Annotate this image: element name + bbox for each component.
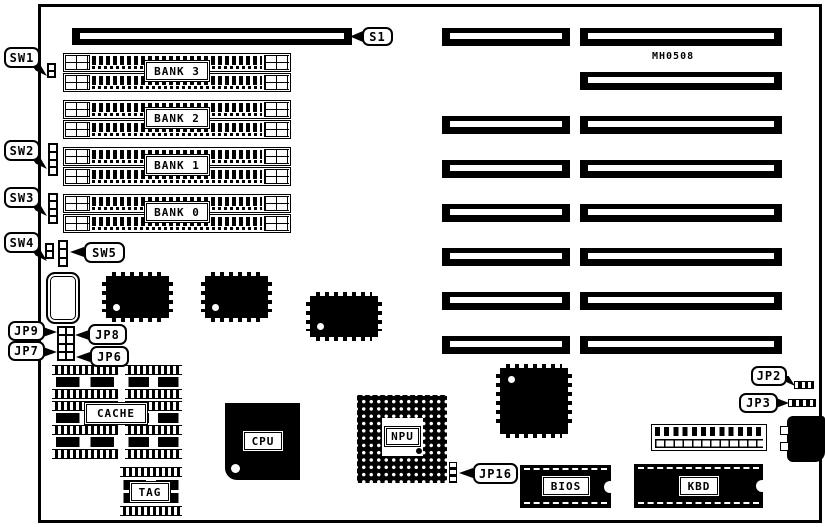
isa-slot [442, 336, 570, 354]
isa-slot [442, 292, 570, 310]
isa-slot [442, 204, 570, 222]
sw1-callout: SW1 [4, 47, 40, 68]
sw5-dip-switch [58, 240, 68, 267]
isa-slot [580, 160, 782, 178]
bios-chip: BIOS [520, 465, 611, 508]
isa-slot [442, 28, 570, 46]
isa-slot [580, 28, 782, 46]
keyboard-din-connector [787, 416, 825, 462]
npu-socket: NPU [357, 395, 447, 483]
s1-callout: S1 [362, 27, 393, 46]
part-number-text: MH0508 [652, 51, 694, 62]
cpu-chip: CPU [225, 403, 300, 480]
jp2-callout: JP2 [751, 366, 787, 386]
qfp-chip-3 [310, 296, 378, 337]
jp3-callout: JP3 [739, 393, 778, 413]
bank-2-label: BANK 2 [146, 109, 208, 127]
sw3-dip-switch [48, 193, 58, 224]
cache-label: CACHE [86, 404, 146, 423]
kbd-label: KBD [680, 477, 718, 495]
din-tab [780, 426, 789, 435]
jp9-callout: JP9 [8, 321, 45, 341]
isa-slot [580, 72, 782, 90]
jp2-jumper [794, 381, 814, 389]
bank-0-label: BANK 0 [146, 203, 208, 221]
jp6-callout: JP6 [90, 346, 129, 367]
crystal-oscillator [46, 272, 80, 324]
jp16-callout: JP16 [473, 463, 518, 484]
sw5-callout: SW5 [84, 242, 125, 263]
motherboard-diagram: S1 BANK 3 BANK 2 BANK 1 BANK 0 SW1 SW2 S… [0, 0, 825, 527]
isa-slot [442, 116, 570, 134]
npu-label: NPU [386, 428, 419, 445]
cpu-label: CPU [244, 432, 282, 450]
isa-slot [580, 204, 782, 222]
sw1-dip-switch [47, 63, 56, 78]
isa-slot [580, 336, 782, 354]
isa-slot [442, 248, 570, 266]
din-tab [780, 442, 789, 451]
isa-slot [580, 248, 782, 266]
qfp-chip-2 [205, 276, 268, 318]
sw4-callout: SW4 [4, 232, 40, 253]
tag-label: TAG [131, 483, 169, 501]
jp7-callout: JP7 [8, 341, 45, 361]
s1-slot [72, 28, 352, 45]
jumper-block-jp6-jp9 [57, 326, 75, 361]
qfp-chip-4 [500, 368, 568, 434]
jp3-jumper [788, 399, 816, 407]
isa-slot [580, 116, 782, 134]
isa-slot [442, 160, 570, 178]
isa-slot [580, 292, 782, 310]
s1-label: S1 [369, 30, 385, 44]
bank-1-label: BANK 1 [146, 156, 208, 174]
jp8-callout: JP8 [88, 324, 127, 345]
qfp-chip-1 [106, 276, 169, 318]
bank-3-label: BANK 3 [146, 62, 208, 80]
kbd-chip: KBD [634, 464, 763, 508]
sw2-dip-switch [48, 143, 58, 176]
power-connector [651, 424, 767, 451]
sw4-dip-switch [45, 243, 54, 259]
sw3-callout: SW3 [4, 187, 40, 208]
jp16-jumper [449, 462, 457, 483]
bios-label: BIOS [543, 477, 589, 495]
sw2-callout: SW2 [4, 140, 40, 161]
